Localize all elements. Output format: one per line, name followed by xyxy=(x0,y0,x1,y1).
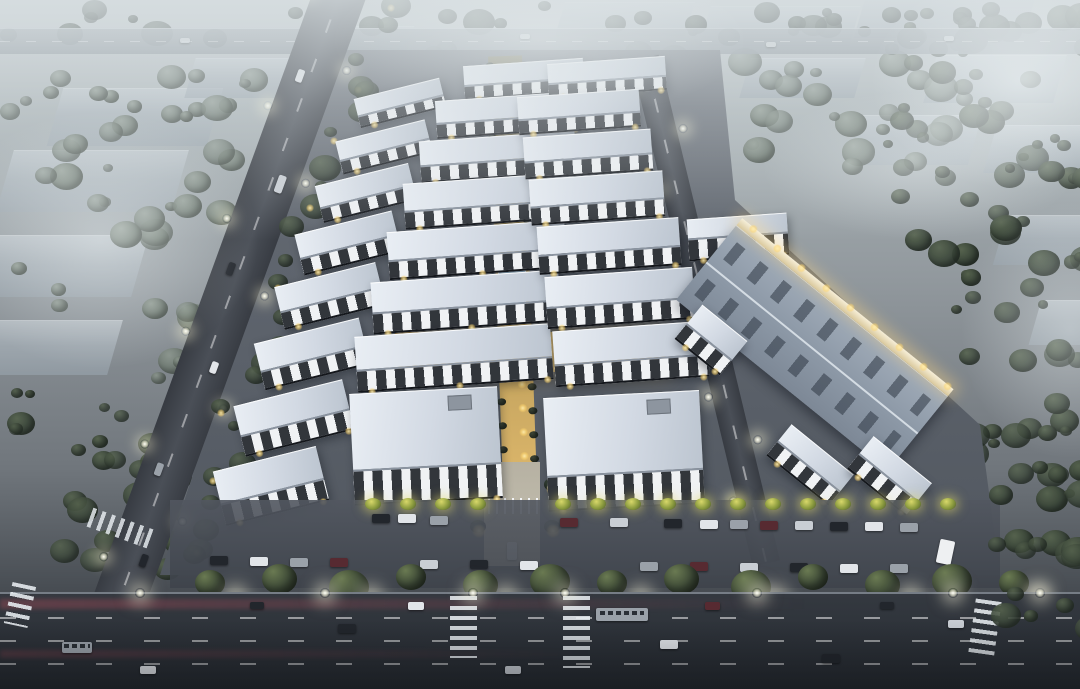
lane-marking xyxy=(0,617,1080,619)
tree xyxy=(157,65,186,89)
tree xyxy=(969,69,983,80)
boulevard-lamp-glow xyxy=(752,588,762,598)
tree xyxy=(904,55,923,70)
lit-shrub xyxy=(400,498,416,510)
street-tree xyxy=(664,564,699,594)
top-road-lane-line xyxy=(0,41,1080,42)
roof xyxy=(349,386,501,472)
lit-shrub xyxy=(870,498,886,510)
parked-car xyxy=(420,560,438,569)
bus xyxy=(596,608,648,621)
tree xyxy=(917,132,929,142)
warehouse-wall-glow xyxy=(795,262,808,275)
tree xyxy=(991,603,1021,628)
tree xyxy=(959,348,980,366)
tree xyxy=(954,79,973,95)
street-tree xyxy=(396,564,426,590)
lit-shrub xyxy=(555,498,571,510)
car-on-road xyxy=(338,624,356,633)
parked-car xyxy=(430,516,448,525)
tree xyxy=(929,61,956,83)
street-tree xyxy=(798,564,828,590)
tree xyxy=(92,435,108,448)
lane-marking xyxy=(0,663,1080,665)
distant-vehicle xyxy=(180,38,190,43)
tree xyxy=(1028,250,1059,276)
tree xyxy=(239,79,251,89)
tree xyxy=(1044,393,1069,414)
axis-light-glow xyxy=(519,427,528,436)
tree xyxy=(288,7,303,19)
car-on-road xyxy=(660,640,678,649)
lit-shrub xyxy=(730,498,746,510)
tree xyxy=(1060,426,1073,436)
tree xyxy=(928,240,960,266)
factory-row-right xyxy=(529,170,666,225)
tree xyxy=(378,17,397,33)
car-on-road xyxy=(408,602,424,610)
bus xyxy=(62,642,92,653)
tree xyxy=(99,403,111,413)
bus-windows xyxy=(600,611,644,615)
boulevard-lamp-glow xyxy=(135,588,145,598)
tree xyxy=(381,0,411,18)
parked-car xyxy=(610,518,628,527)
tree xyxy=(82,0,107,20)
tree xyxy=(25,390,35,398)
tree xyxy=(905,229,931,250)
lit-shrub xyxy=(365,498,381,510)
tree xyxy=(438,9,457,24)
tree xyxy=(50,539,80,563)
factory-row-right xyxy=(536,217,681,275)
tree xyxy=(1038,425,1058,441)
tree xyxy=(9,423,24,435)
tree xyxy=(63,134,88,154)
landscape-light-glow xyxy=(217,409,225,417)
lit-shrub xyxy=(625,498,641,510)
tree xyxy=(990,215,1022,241)
parked-car xyxy=(830,522,848,531)
tree xyxy=(951,305,962,314)
tree xyxy=(11,262,26,275)
warehouse-wall-glow xyxy=(917,360,930,373)
parked-car xyxy=(210,556,228,565)
parked-car xyxy=(250,557,268,566)
tree xyxy=(142,298,168,319)
tree xyxy=(829,112,840,121)
car-on-road xyxy=(822,654,840,663)
tree xyxy=(893,159,913,176)
distant-vehicle xyxy=(520,34,530,39)
tree xyxy=(104,451,126,469)
car-on-road xyxy=(948,620,964,628)
tree xyxy=(324,127,336,137)
tail-light-streak xyxy=(0,599,810,609)
tree xyxy=(0,103,20,119)
street-lamp-glow xyxy=(262,100,274,112)
parked-car xyxy=(560,518,578,527)
tree xyxy=(1038,300,1048,308)
warehouse-wall-glow xyxy=(868,321,881,334)
vehicle xyxy=(209,361,220,375)
parked-car xyxy=(372,514,390,523)
boulevard-lamp-glow xyxy=(320,588,330,598)
tree xyxy=(173,194,202,218)
tree xyxy=(71,444,86,456)
tree xyxy=(203,139,235,165)
car-on-road xyxy=(880,602,894,609)
lit-shrub xyxy=(660,498,676,510)
parked-car xyxy=(398,514,416,523)
tree xyxy=(743,137,775,163)
tree xyxy=(1007,587,1023,600)
axis-light-glow xyxy=(520,451,529,460)
tree xyxy=(960,192,979,207)
tree xyxy=(20,96,32,106)
front-main-building xyxy=(543,390,705,512)
tree xyxy=(278,254,293,266)
distant-warehouse xyxy=(0,320,123,375)
lit-shrub xyxy=(905,498,921,510)
lit-shrub xyxy=(470,498,486,510)
tree xyxy=(876,124,890,135)
tree xyxy=(114,410,129,422)
tree xyxy=(1009,349,1038,372)
vehicle xyxy=(225,262,236,277)
lit-shrub xyxy=(940,498,956,510)
parked-car xyxy=(664,519,682,528)
tree xyxy=(309,155,341,181)
tree xyxy=(1048,466,1069,483)
tree xyxy=(51,283,67,296)
tree xyxy=(1020,71,1040,88)
tree xyxy=(134,206,165,231)
lit-shrub xyxy=(695,498,711,510)
boulevard-lamp-glow xyxy=(948,588,958,598)
tree xyxy=(35,167,57,185)
tree xyxy=(891,189,910,204)
tree xyxy=(988,537,1007,552)
crosswalk xyxy=(563,596,590,668)
vehicle xyxy=(273,175,287,195)
bus-windows xyxy=(64,644,89,648)
tree xyxy=(201,95,233,121)
rooftop-unit xyxy=(447,394,472,410)
tree xyxy=(50,70,71,87)
tree xyxy=(1038,161,1064,183)
tree xyxy=(988,439,1000,449)
tree xyxy=(634,11,652,26)
tree xyxy=(1032,461,1048,474)
lit-shrub xyxy=(590,498,606,510)
axis-light-glow xyxy=(518,403,527,412)
tree xyxy=(188,69,205,83)
tree xyxy=(1036,486,1068,512)
boulevard xyxy=(0,592,1080,689)
tree xyxy=(11,388,23,398)
parked-car xyxy=(330,558,348,567)
landscape-light-glow xyxy=(306,204,314,212)
warehouse-wall-glow xyxy=(844,301,857,314)
vehicle xyxy=(295,68,306,83)
parked-car xyxy=(890,564,908,573)
distant-vehicle xyxy=(766,42,776,47)
tree xyxy=(1066,480,1080,507)
parked-car xyxy=(290,558,308,567)
boulevard-lamp-glow xyxy=(560,588,570,598)
parked-car xyxy=(865,522,883,531)
tree xyxy=(51,299,68,313)
crosswalk xyxy=(450,596,477,658)
lane-marking xyxy=(0,640,1080,642)
tree xyxy=(1069,460,1080,481)
tree xyxy=(1057,140,1071,151)
tree xyxy=(497,398,506,406)
rooftop-unit xyxy=(646,398,671,414)
tree xyxy=(994,302,1019,323)
tree xyxy=(842,158,863,175)
car-on-road xyxy=(250,602,264,609)
parked-car xyxy=(900,523,918,532)
distant-warehouse xyxy=(1029,300,1080,345)
tree xyxy=(1008,463,1034,484)
parked-car xyxy=(760,521,778,530)
tree xyxy=(775,75,802,97)
tree xyxy=(961,269,981,286)
tree xyxy=(965,291,981,304)
parked-car xyxy=(795,521,813,530)
tree xyxy=(826,13,842,26)
tree xyxy=(1024,610,1038,621)
tree xyxy=(184,171,211,193)
tree xyxy=(989,485,1013,504)
parked-car xyxy=(730,520,748,529)
parked-car xyxy=(470,560,488,569)
tree xyxy=(935,166,949,178)
boulevard-lamp-glow xyxy=(468,588,478,598)
tree xyxy=(803,83,831,106)
lit-shrub xyxy=(435,498,451,510)
roof xyxy=(543,390,703,478)
tree xyxy=(810,68,822,78)
tree xyxy=(127,100,142,112)
tree xyxy=(904,10,918,21)
street-lamp-glow xyxy=(180,325,192,337)
boulevard-lamp-glow xyxy=(1035,588,1045,598)
tree xyxy=(1046,339,1072,361)
tree xyxy=(1020,278,1044,298)
tree xyxy=(89,86,107,101)
tree xyxy=(765,110,793,133)
tree xyxy=(978,97,992,108)
car-on-road xyxy=(505,666,521,674)
tree xyxy=(128,15,138,23)
lit-shrub xyxy=(800,498,816,510)
parked-car xyxy=(700,520,718,529)
distant-vehicle xyxy=(944,36,954,41)
lit-shrub xyxy=(835,498,851,510)
vehicle xyxy=(138,553,149,568)
tree xyxy=(538,1,551,11)
tree xyxy=(43,86,60,100)
tree xyxy=(180,111,193,122)
street-tree xyxy=(262,564,297,594)
car-on-road xyxy=(705,602,720,610)
warehouse-wall-glow xyxy=(893,341,906,354)
tree xyxy=(99,122,123,142)
factory-row-right xyxy=(544,267,695,329)
tree xyxy=(1001,423,1031,448)
front-main-building xyxy=(349,386,503,506)
tree xyxy=(1005,164,1016,173)
lit-shrub xyxy=(765,498,781,510)
warehouse-wall-glow xyxy=(941,380,954,393)
car-on-road xyxy=(140,666,156,674)
parked-car xyxy=(840,564,858,573)
tree xyxy=(882,7,901,23)
parked-car xyxy=(640,562,658,571)
warehouse-wall-glow xyxy=(820,282,833,295)
tree xyxy=(151,372,166,384)
industrial-park-aerial-rendering xyxy=(0,0,1080,689)
